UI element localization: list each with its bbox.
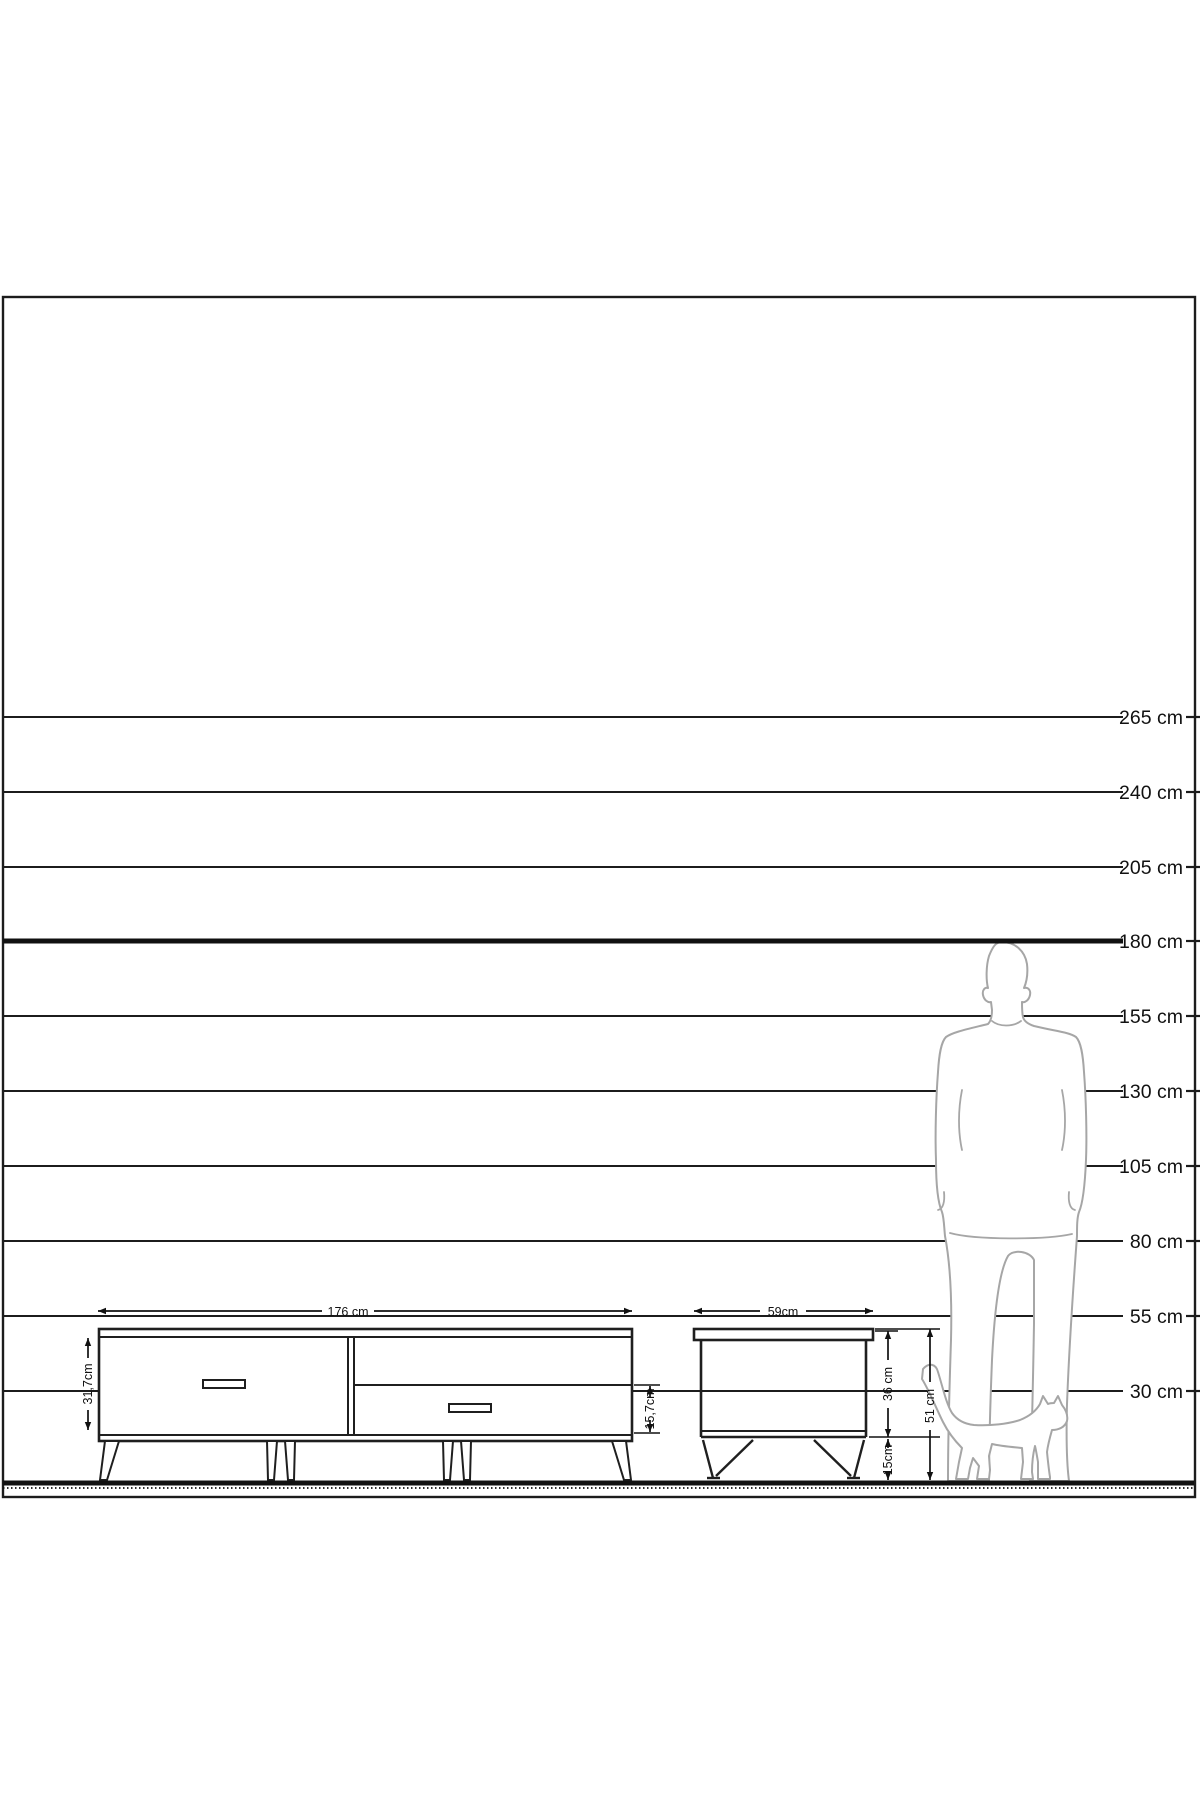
side-table-leg-line (716, 1440, 753, 1476)
side-table-leg-line (703, 1440, 713, 1478)
side-table-drawing (694, 1329, 873, 1478)
tv-stand-front-height-label: 31,7cm (81, 1364, 95, 1405)
side-table-width-label: 59cm (768, 1305, 799, 1319)
scale-label-30: 30 cm (1130, 1381, 1183, 1403)
scale-label-240: 240 cm (1119, 782, 1183, 804)
man-silhouette (936, 942, 1087, 1481)
scale-label-55: 55 cm (1130, 1306, 1183, 1328)
tv-stand-drawing (99, 1329, 632, 1480)
tv-stand-leg (461, 1441, 471, 1480)
scale-label-265: 265 cm (1119, 707, 1183, 729)
scale-label-80: 80 cm (1130, 1231, 1183, 1253)
scale-label-205: 205 cm (1119, 857, 1183, 879)
tv-stand-drawer-height-label: 15,7cm (643, 1389, 657, 1430)
scale-label-130: 130 cm (1119, 1081, 1183, 1103)
tv-stand-drawer-handle-left (203, 1380, 245, 1388)
floor-line (3, 1483, 1194, 1488)
tv-stand-leg (267, 1441, 277, 1480)
scale-label-155: 155 cm (1119, 1006, 1183, 1028)
tv-stand-leg (612, 1441, 631, 1480)
side-table-leg-height-label: 15cm (881, 1445, 895, 1476)
tv-stand-width-label: 176 cm (328, 1305, 369, 1319)
tv-stand-leg (100, 1441, 119, 1480)
side-table-leg-line (814, 1440, 851, 1476)
man-outline (936, 942, 1087, 1481)
scale-label-180: 180 cm (1119, 931, 1183, 953)
tv-stand-drawer-handle-right (449, 1404, 491, 1412)
side-table-total-height-label: 51 cm (923, 1389, 937, 1423)
side-table-leg-line (854, 1440, 864, 1478)
tv-stand-leg (285, 1441, 295, 1480)
side-table-body-height-label: 36 cm (881, 1367, 895, 1401)
tv-stand-leg (443, 1441, 453, 1480)
scale-label-105: 105 cm (1119, 1156, 1183, 1178)
side-table-top-panel (694, 1329, 873, 1340)
height-scale-labels: 265 cm 240 cm 205 cm 180 cm 155 cm 130 c… (1119, 707, 1200, 1403)
diagram-canvas: 176 cm 31,7cm 15,7cm 59cm 36 cm 15cm 51 … (0, 0, 1200, 1800)
furniture-scale-diagram: 176 cm 31,7cm 15,7cm 59cm 36 cm 15cm 51 … (0, 0, 1200, 1800)
side-table-legs (703, 1440, 864, 1478)
tv-stand-legs (100, 1441, 631, 1480)
